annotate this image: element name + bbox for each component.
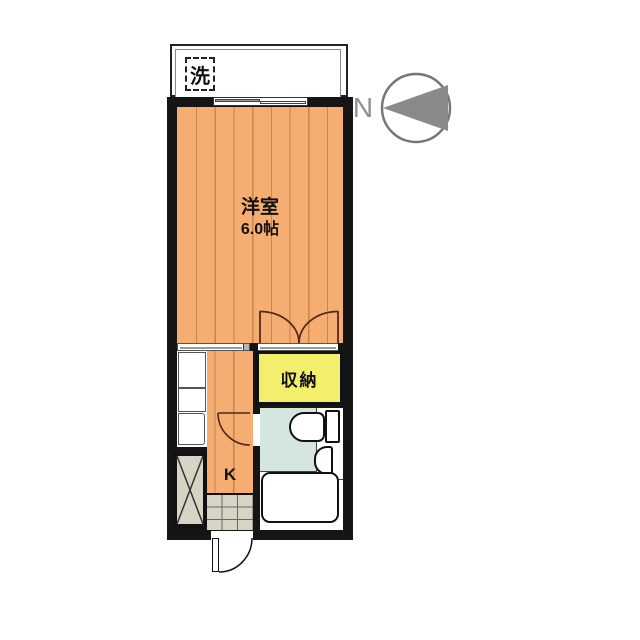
washing-machine-icon: 洗: [185, 57, 215, 91]
compass-north-label: N: [348, 92, 378, 124]
floor-plan: 洗 収納 洋室 6.0帖 K N: [0, 0, 640, 640]
kitchen-sink: [178, 413, 205, 445]
bathtub-icon: [261, 472, 339, 523]
sliding-window-icon: [213, 97, 308, 106]
toilet-tank-icon: [325, 410, 340, 443]
entrance-door-leaf: [212, 538, 219, 572]
closet: 収納: [256, 351, 343, 405]
bathroom-door-opening: [253, 414, 260, 446]
kitchen-partition-door-icon: [177, 343, 250, 351]
main-room-label: 洋室 6.0帖: [187, 196, 333, 240]
kitchen-label: K: [215, 465, 245, 485]
closet-threshold: [258, 343, 338, 351]
genkan-tiles: [207, 493, 253, 530]
entrance-door-swing-icon: [219, 538, 252, 572]
main-room-size: 6.0帖: [187, 220, 333, 240]
main-room-name: 洋室: [187, 196, 333, 220]
closet-threshold-rail: [260, 347, 336, 349]
window-pane-right: [260, 101, 306, 104]
window-pane-left: [215, 99, 260, 102]
kitchen-counter: [178, 352, 206, 388]
kitchen-counter: [178, 388, 206, 412]
partition-rail: [180, 347, 242, 349]
toilet-icon: [289, 412, 325, 442]
partition-cap: [243, 344, 249, 350]
compass-icon: [382, 74, 450, 142]
wash-basin-icon: [314, 446, 333, 475]
refrigerator-space: [177, 456, 203, 524]
